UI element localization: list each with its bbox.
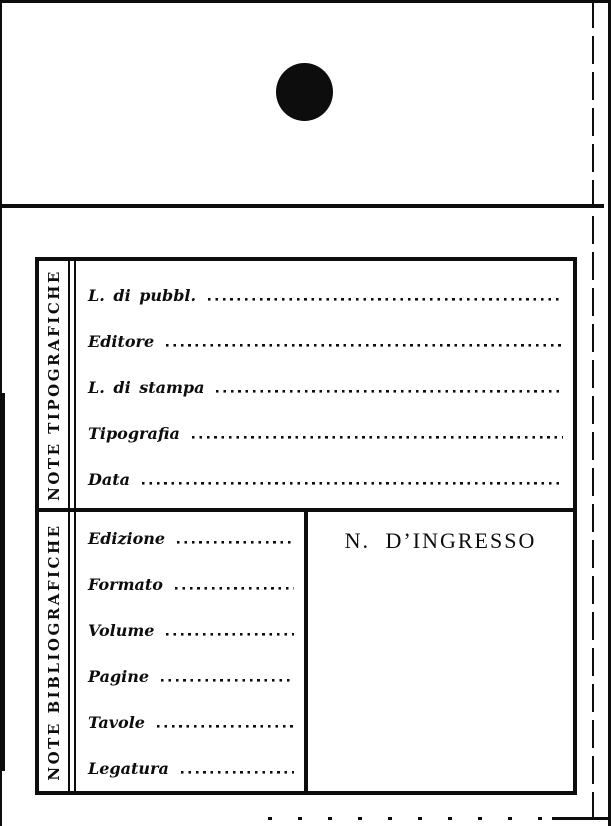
dotted-fill-line — [175, 578, 294, 590]
field-row: Editore — [88, 319, 565, 365]
field-row: Tavole — [88, 700, 296, 746]
ingresso-label: N. D’INGRESSO — [345, 528, 537, 553]
typographic-side-column: NOTE TIPOGRAFICHE — [39, 261, 68, 508]
field-row: Pagine — [88, 654, 296, 700]
typographic-section-title: NOTE TIPOGRAFICHE — [45, 269, 63, 501]
field-row: Volume — [88, 608, 296, 654]
field-label-tavole: Tavole — [88, 700, 145, 746]
dotted-fill-line — [166, 335, 563, 347]
typographic-fields: L. di pubbl. Editore L. di stampa Tipogr… — [76, 261, 573, 508]
field-label-tipografia: Tipografia — [88, 411, 180, 457]
field-label-data: Data — [88, 457, 130, 503]
dotted-fill-line — [181, 762, 294, 774]
ingresso-box: N. D’INGRESSO — [308, 512, 573, 791]
bibliographic-content: Edizione Formato Volume Pagine — [76, 512, 573, 791]
field-row: Formato — [88, 562, 296, 608]
typographic-section: NOTE TIPOGRAFICHE L. di pubbl. Editore L… — [39, 261, 573, 512]
dotted-fill-line — [157, 716, 294, 728]
field-label-formato: Formato — [88, 562, 163, 608]
field-row: Legatura — [88, 746, 296, 791]
dotted-fill-line — [216, 381, 563, 393]
catalog-card-scan: NOTE TIPOGRAFICHE L. di pubbl. Editore L… — [0, 0, 611, 826]
bibliographic-section: NOTE BIBLIOGRAFICHE Edizione Formato Vol… — [39, 512, 573, 791]
horizontal-divider-rule — [0, 204, 604, 208]
dotted-fill-line — [208, 289, 563, 301]
dotted-fill-line — [177, 532, 294, 544]
scan-bottom-dotted-artifact — [268, 817, 553, 820]
field-label-luogo-stampa: L. di stampa — [88, 365, 204, 411]
bibliographic-side-column: NOTE BIBLIOGRAFICHE — [39, 512, 68, 791]
scan-edge-top — [0, 0, 611, 3]
form-box: NOTE TIPOGRAFICHE L. di pubbl. Editore L… — [35, 257, 577, 795]
field-row: L. di pubbl. — [88, 273, 565, 319]
double-rule-divider — [68, 512, 76, 791]
dotted-fill-line — [161, 670, 294, 682]
field-row: Edizione — [88, 516, 296, 562]
punch-hole-icon — [276, 63, 333, 121]
field-label-luogo-pubblicazione: L. di pubbl. — [88, 273, 196, 319]
bibliographic-section-title: NOTE BIBLIOGRAFICHE — [45, 523, 63, 780]
field-label-edizione: Edizione — [88, 516, 165, 562]
field-label-editore: Editore — [88, 319, 154, 365]
scan-bottom-dash-artifact — [552, 817, 611, 820]
field-row: Tipografia — [88, 411, 565, 457]
field-label-legatura: Legatura — [88, 746, 169, 791]
dotted-fill-line — [142, 473, 563, 485]
scan-fold-line — [592, 0, 594, 826]
dotted-fill-line — [166, 624, 294, 636]
double-rule-divider — [68, 261, 76, 508]
field-label-volume: Volume — [88, 608, 154, 654]
field-row: L. di stampa — [88, 365, 565, 411]
field-row: Data — [88, 457, 565, 503]
bibliographic-fields: Edizione Formato Volume Pagine — [76, 512, 308, 791]
dotted-fill-line — [192, 427, 563, 439]
field-label-pagine: Pagine — [88, 654, 149, 700]
scan-edge-left-shadow — [0, 393, 5, 771]
